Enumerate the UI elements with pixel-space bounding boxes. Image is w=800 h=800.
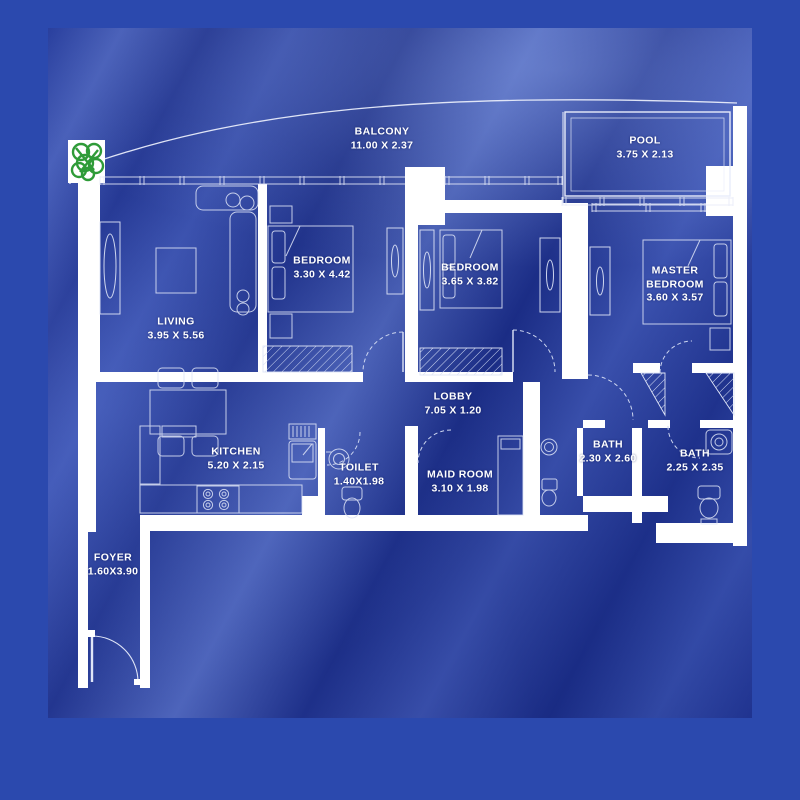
room-dims: 2.25 X 2.35	[666, 461, 723, 475]
room-dims: 3.60 X 3.57	[636, 292, 714, 306]
room-dims: 3.65 X 3.82	[441, 275, 499, 289]
room-label-balcony: BALCONY 11.00 X 2.37	[351, 125, 414, 152]
room-name: LIVING	[147, 315, 204, 329]
room-name: FOYER	[88, 551, 139, 565]
room-label-toilet: TOILET 1.40X1.98	[334, 461, 385, 488]
wardrobe-units	[100, 222, 610, 315]
room-name: POOL	[616, 134, 673, 148]
room-dims: 7.05 X 1.20	[424, 404, 481, 418]
blueprint-page: { "plan": { "rooms": { "balcony": { "nam…	[0, 0, 800, 800]
room-name: MAID ROOM	[427, 468, 493, 482]
room-name: BALCONY	[351, 125, 414, 139]
room-dims: 1.60X3.90	[88, 565, 139, 579]
planter-box	[68, 140, 105, 183]
room-label-lobby: LOBBY 7.05 X 1.20	[424, 390, 481, 417]
room-dims: 1.40X1.98	[334, 475, 385, 489]
room-label-kitchen: KITCHEN 5.20 X 2.15	[207, 445, 264, 472]
room-label-pool: POOL 3.75 X 2.13	[616, 134, 673, 161]
walls	[78, 106, 747, 688]
sofa	[196, 186, 258, 315]
room-label-master-bedroom: MASTER BEDROOM 3.60 X 3.57	[636, 265, 714, 306]
room-dims: 3.10 X 1.98	[427, 482, 493, 496]
floor-plan-drawing	[0, 0, 800, 800]
room-name: TOILET	[334, 461, 385, 475]
room-name: BEDROOM	[293, 254, 351, 268]
stove	[197, 486, 239, 513]
room-name: BATH	[579, 438, 636, 452]
room-label-bedroom-2: BEDROOM 3.65 X 3.82	[441, 261, 499, 288]
room-label-bath-2: BATH 2.25 X 2.35	[666, 447, 723, 474]
entrance-door	[88, 630, 142, 685]
room-dims: 11.00 X 2.37	[351, 139, 414, 153]
room-dims: 2.30 X 2.60	[579, 452, 636, 466]
room-name: LOBBY	[424, 390, 481, 404]
room-label-foyer: FOYER 1.60X3.90	[88, 551, 139, 578]
rug	[156, 248, 196, 293]
bath2-wc	[698, 486, 720, 524]
room-dims: 3.75 X 2.13	[616, 148, 673, 162]
room-name: BATH	[666, 447, 723, 461]
toilet-wc	[342, 487, 362, 518]
maid-bed	[498, 436, 523, 515]
room-name: MASTER BEDROOM	[636, 265, 714, 292]
room-label-living: LIVING 3.95 X 5.56	[147, 315, 204, 342]
room-name: KITCHEN	[207, 445, 264, 459]
room-name: BEDROOM	[441, 261, 499, 275]
room-label-bath-1: BATH 2.30 X 2.60	[579, 438, 636, 465]
room-label-maid-room: MAID ROOM 3.10 X 1.98	[427, 468, 493, 495]
maid-toilet-fixtures	[541, 439, 557, 506]
room-label-bedroom-1: BEDROOM 3.30 X 4.42	[293, 254, 351, 281]
kitchen-sink	[289, 424, 316, 479]
room-dims: 3.30 X 4.42	[293, 268, 351, 282]
room-dims: 5.20 X 2.15	[207, 459, 264, 473]
room-dims: 3.95 X 5.56	[147, 329, 204, 343]
